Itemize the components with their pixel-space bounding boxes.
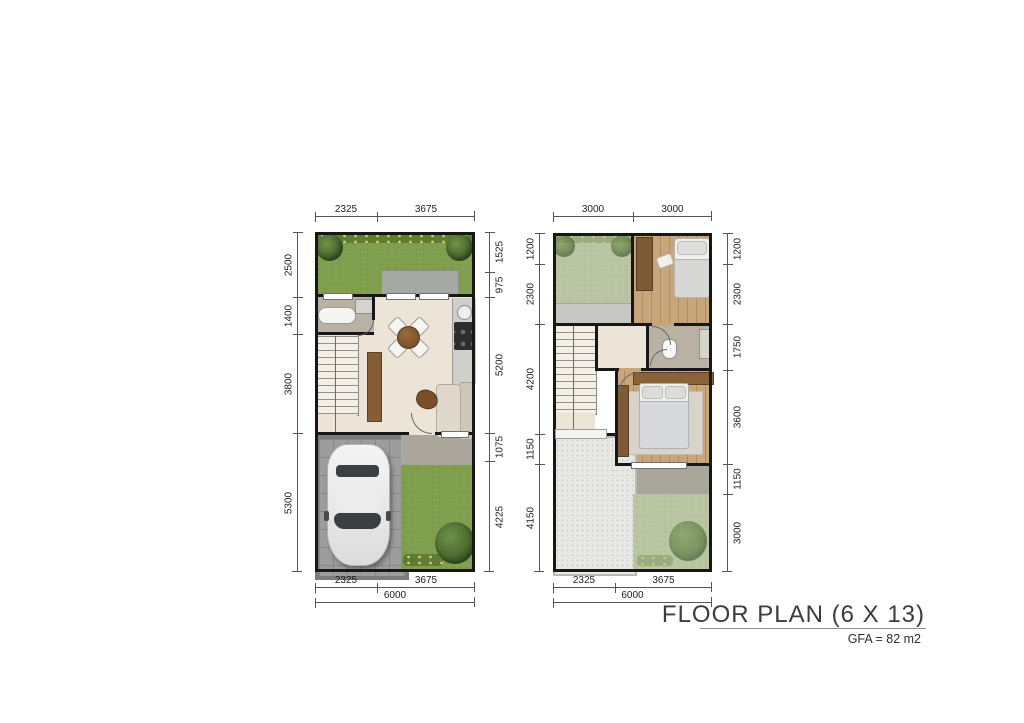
garden-tree [446,234,473,261]
staircase-divider [335,336,336,432]
dim-label: 3675 [652,575,674,586]
dim-segment: 3000 [727,494,728,572]
balcony-sliding-door [631,462,687,469]
stove [454,322,473,350]
rear-roof-shrubs [637,555,673,566]
dim-label: 4200 [526,368,537,390]
dim-label: 3675 [415,204,437,215]
dim-segment: 6000 [315,602,475,603]
dim-segment: 2325 [315,216,377,217]
dim-label: 3000 [582,204,604,215]
dim-segment: 3675 [615,587,712,588]
dim-segment: 2300 [727,264,728,324]
roof-garden-tree [553,235,575,257]
master-duvet [639,401,689,449]
dim-segment: 1200 [539,233,540,264]
dim-label: 2300 [526,283,537,305]
car-mirror [324,511,329,521]
dim-segment: 975 [489,272,490,297]
bathtub [318,307,356,324]
bedroom2-blanket [674,259,711,298]
window [441,431,469,438]
dim-segment: 4150 [539,464,540,572]
dining-table [397,326,420,349]
staircase-divider [573,325,574,429]
dim-segment: 5200 [489,297,490,433]
dim-label: 2325 [335,204,357,215]
dim-segment: 3000 [633,216,712,217]
dim-label: 2300 [733,283,744,305]
sheet-title: FLOOR PLAN (6 X 13) [662,601,925,629]
master-side-wardrobe [617,385,629,457]
sofa-seat [436,384,461,438]
car-rear-window [336,465,379,477]
rear-roof-tree [669,521,707,561]
bedroom2-wardrobe [636,237,653,291]
dim-segment: 3675 [377,587,475,588]
carport-roof-deck [553,436,637,576]
dim-label: 975 [495,276,506,293]
kitchen-sink [457,305,472,320]
dim-segment: 1075 [489,433,490,461]
master-pillow [642,386,663,399]
wall [595,368,712,371]
upper-hall-floor [595,325,648,370]
master-pillow [665,386,686,399]
garden-tree [435,522,475,564]
wall [615,370,618,466]
dim-label: 1150 [526,438,537,460]
dim-label: 1525 [495,241,506,263]
bedroom2-pillow [677,241,707,255]
dim-segment: 1400 [297,297,298,334]
dim-segment: 6000 [553,602,712,603]
master-door-gap [619,368,641,371]
wall [595,325,598,370]
floor-plan-sheet: 23253675 2500140038005300 15259755200107… [0,0,1024,723]
dim-label: 3000 [733,522,744,544]
dim-label: 1075 [495,436,506,458]
dim-segment: 3600 [727,370,728,464]
ground-floor-plan [315,232,475,572]
garden-tree [316,234,343,261]
window [386,293,416,300]
dim-segment: 2300 [539,264,540,324]
dim-segment: 2500 [297,232,298,297]
dim-segment: 5300 [297,433,298,572]
dim-label: 1150 [733,468,744,490]
car-mirror [386,511,391,521]
car-roof [335,478,380,512]
dim-label: 4225 [495,505,506,527]
dim-label: 1200 [733,237,744,259]
dim-segment: 1750 [727,324,728,370]
window [323,293,353,300]
dim-label: 2500 [284,253,295,275]
dim-label: 1400 [284,304,295,326]
car-windshield [334,513,381,529]
dim-label: 3000 [661,204,683,215]
dim-segment: 3000 [553,216,633,217]
dim-segment: 1200 [727,233,728,264]
dim-segment: 3800 [297,334,298,433]
dim-label: 5300 [284,491,295,513]
dim-label: 2325 [335,575,357,586]
window [419,293,449,300]
dim-segment: 1525 [489,232,490,272]
dim-label: 3800 [284,372,295,394]
dim-segment: 2325 [553,587,615,588]
dim-label: 6000 [384,590,406,601]
dim-segment: 3675 [377,216,475,217]
title-underline [700,628,926,629]
dim-segment: 1150 [539,434,540,464]
wall [646,325,649,370]
wall [372,296,375,320]
garden-shrubs [403,554,443,566]
roof-ledge [555,429,607,439]
roof-garden-tree [611,235,633,257]
staircase [316,336,359,416]
dim-label: 4150 [526,507,537,529]
vanity-sink [699,329,712,359]
gfa-note: GFA = 82 m2 [848,632,921,646]
wall [631,233,634,325]
dim-label: 2325 [573,575,595,586]
dim-label: 6000 [621,590,643,601]
dim-segment: 2325 [315,587,377,588]
dim-label: 3675 [415,575,437,586]
dim-segment: 1150 [727,464,728,494]
washer [355,299,373,314]
dim-label: 3600 [733,406,744,428]
dim-label: 1750 [733,336,744,358]
dim-label: 5200 [495,354,506,376]
car [327,444,390,566]
dim-segment: 4200 [539,324,540,434]
stair-landing [316,414,357,432]
dim-segment: 4225 [489,461,490,572]
dim-label: 1200 [526,237,537,259]
tv-console [367,352,382,422]
staircase-upper [554,325,597,415]
upper-floor-plan [553,233,712,572]
